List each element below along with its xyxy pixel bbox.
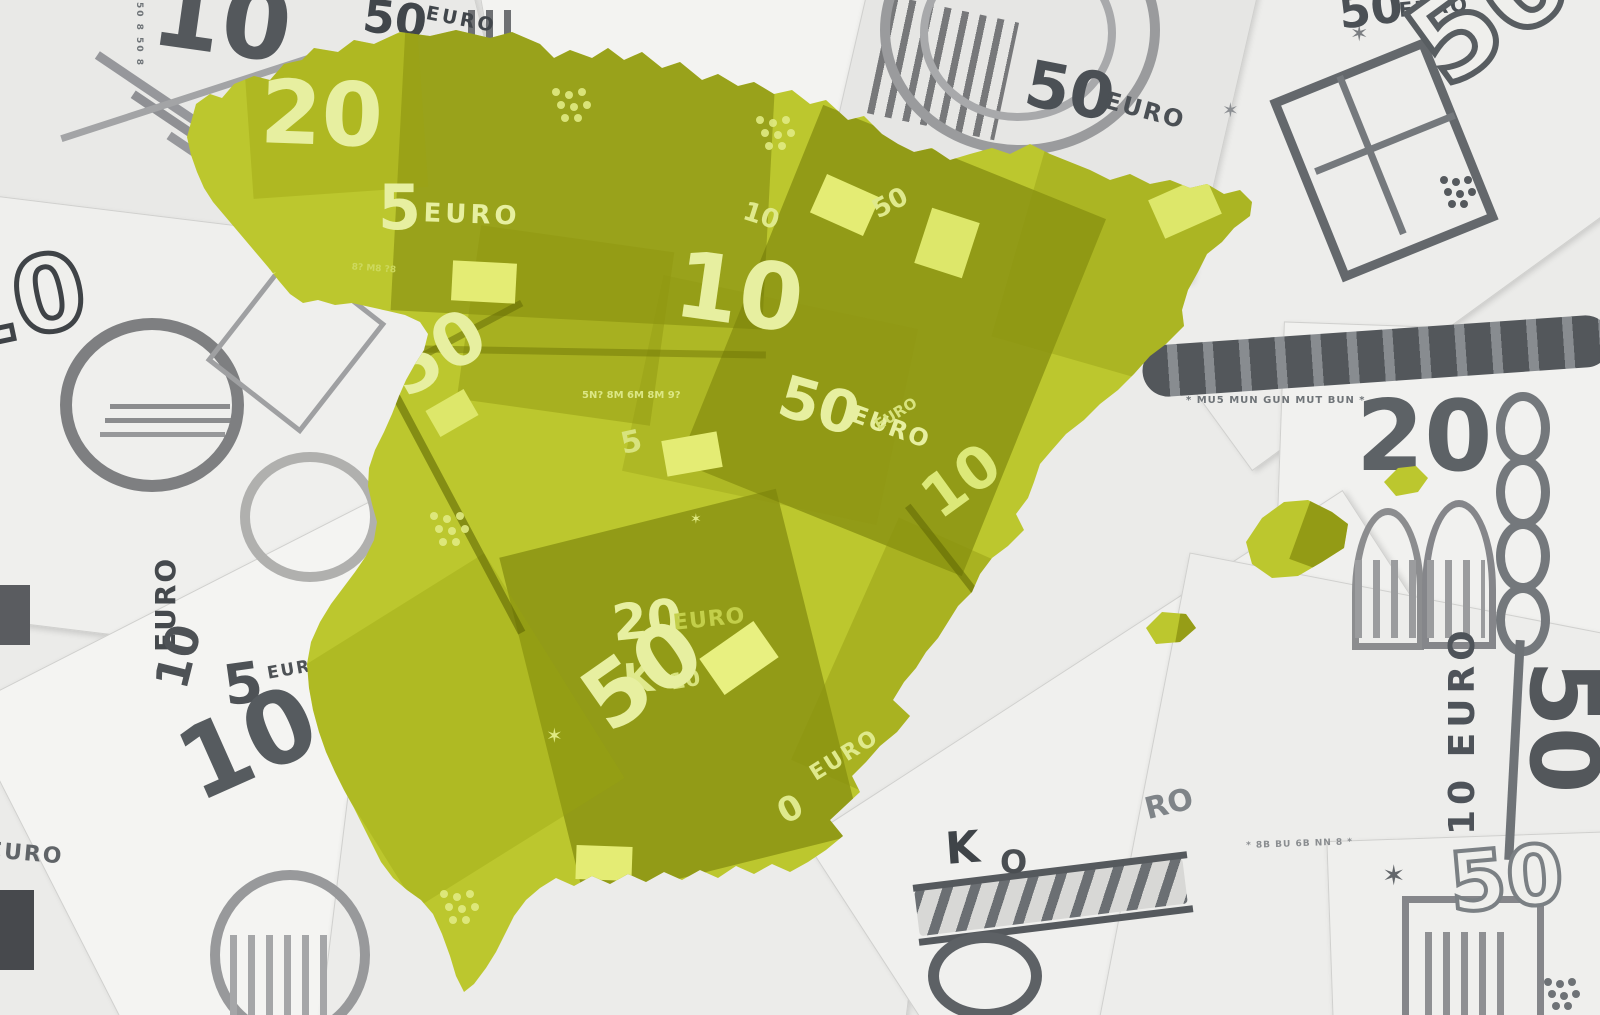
map-hologram-dot <box>761 129 769 137</box>
spain-money-map: 205EURO10501050EURO50EURO10520EUROK10500… <box>0 0 1600 1015</box>
map-hologram-dot <box>778 142 786 150</box>
map-hologram-dot <box>443 515 451 523</box>
map-hologram-dot <box>471 903 479 911</box>
map-hologram-dot <box>565 91 573 99</box>
map-serial-number-text: ?8N 88 MN 88 N8? <box>928 839 1031 854</box>
stage: ✶✶✶ 1050 8 50 850EURO50EURO50EURO5020* M… <box>0 0 1600 1015</box>
map-denomination-text: 10 <box>668 231 810 355</box>
map-euro-star-icon: ✶ <box>876 110 889 129</box>
map-hologram-dot <box>578 88 586 96</box>
map-hologram-dot <box>461 525 469 533</box>
map-hologram-dot <box>445 903 453 911</box>
map-hologram-dot <box>583 101 591 109</box>
map-denomination-text: 5 <box>378 171 421 244</box>
map-hologram-dot <box>557 101 565 109</box>
map-euro-star-icon: ✶ <box>690 511 702 527</box>
map-euro-star-icon: ✶ <box>546 723 563 747</box>
map-euro-star-icon: ✶ <box>264 266 277 285</box>
map-hologram-dot <box>458 905 466 913</box>
map-hologram-dot <box>782 116 790 124</box>
map-hologram-dot <box>452 538 460 546</box>
map-dark-note-block <box>1175 606 1211 651</box>
map-fill-group: 205EURO10501050EURO50EURO10520EUROK10500… <box>0 0 1600 1015</box>
map-hologram-dot <box>439 538 447 546</box>
map-hologram-dot <box>552 88 560 96</box>
hologram-patch <box>575 845 632 881</box>
map-hologram-dot <box>440 890 448 898</box>
map-euro-star-icon: ✶ <box>928 737 946 762</box>
map-hologram-dot <box>756 116 764 124</box>
map-hologram-dot <box>787 129 795 137</box>
map-hologram-dot <box>570 103 578 111</box>
map-hologram-dot <box>456 512 464 520</box>
map-hologram-dot <box>435 525 443 533</box>
map-hologram-dot <box>774 131 782 139</box>
map-hologram-dot <box>466 890 474 898</box>
map-euro-currency-label: EURO <box>423 198 521 231</box>
map-hologram-dot <box>453 893 461 901</box>
map-hologram-dot <box>462 916 470 924</box>
map-hologram-dot <box>769 119 777 127</box>
map-hologram-dot <box>430 512 438 520</box>
map-serial-number-text: 5N? 8M 6M 8M 9? <box>582 390 681 401</box>
map-denomination-text: 20 <box>259 60 385 167</box>
map-hologram-dot <box>765 142 773 150</box>
map-hologram-dot <box>449 916 457 924</box>
map-hologram-dot <box>561 114 569 122</box>
map-hologram-dot <box>448 527 456 535</box>
map-hologram-dot <box>574 114 582 122</box>
